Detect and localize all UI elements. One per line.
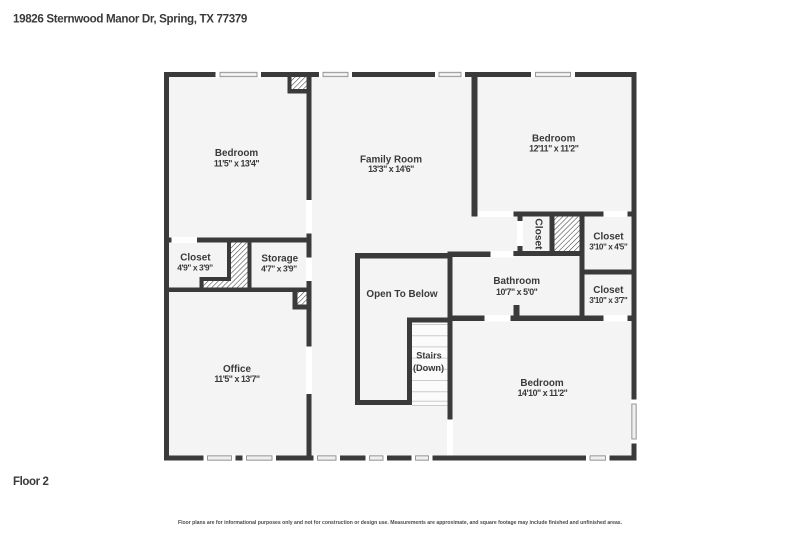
svg-text:11'5" x 13'7": 11'5" x 13'7" [214, 374, 260, 384]
svg-text:Open To Below: Open To Below [366, 289, 437, 300]
svg-text:3'10" x 4'5": 3'10" x 4'5" [589, 243, 628, 252]
svg-text:Stairs: Stairs [416, 350, 442, 360]
svg-text:11'5" x 13'4": 11'5" x 13'4" [214, 158, 260, 168]
svg-text:4'7" x 3'9": 4'7" x 3'9" [261, 263, 297, 273]
svg-text:Closet: Closet [532, 218, 543, 250]
svg-text:Floor plans are for informatio: Floor plans are for informational purpos… [178, 520, 623, 526]
svg-text:3'10" x 3'7": 3'10" x 3'7" [589, 296, 628, 305]
svg-text:19826 Sternwood Manor Dr, Spri: 19826 Sternwood Manor Dr, Spring, TX 773… [13, 13, 248, 26]
svg-text:10'7" x 5'0": 10'7" x 5'0" [496, 287, 538, 297]
svg-text:Floor 2: Floor 2 [13, 476, 49, 488]
svg-text:Bathroom: Bathroom [493, 276, 540, 287]
svg-text:Closet: Closet [593, 232, 624, 243]
svg-text:4'9" x 3'9": 4'9" x 3'9" [177, 263, 213, 273]
svg-text:14'10" x 11'2": 14'10" x 11'2" [518, 388, 568, 398]
svg-text:13'3" x 14'6": 13'3" x 14'6" [368, 164, 414, 174]
svg-text:Closet: Closet [593, 285, 624, 296]
svg-text:12'11" x 11'2": 12'11" x 11'2" [529, 144, 579, 154]
svg-text:(Down): (Down) [413, 363, 444, 373]
